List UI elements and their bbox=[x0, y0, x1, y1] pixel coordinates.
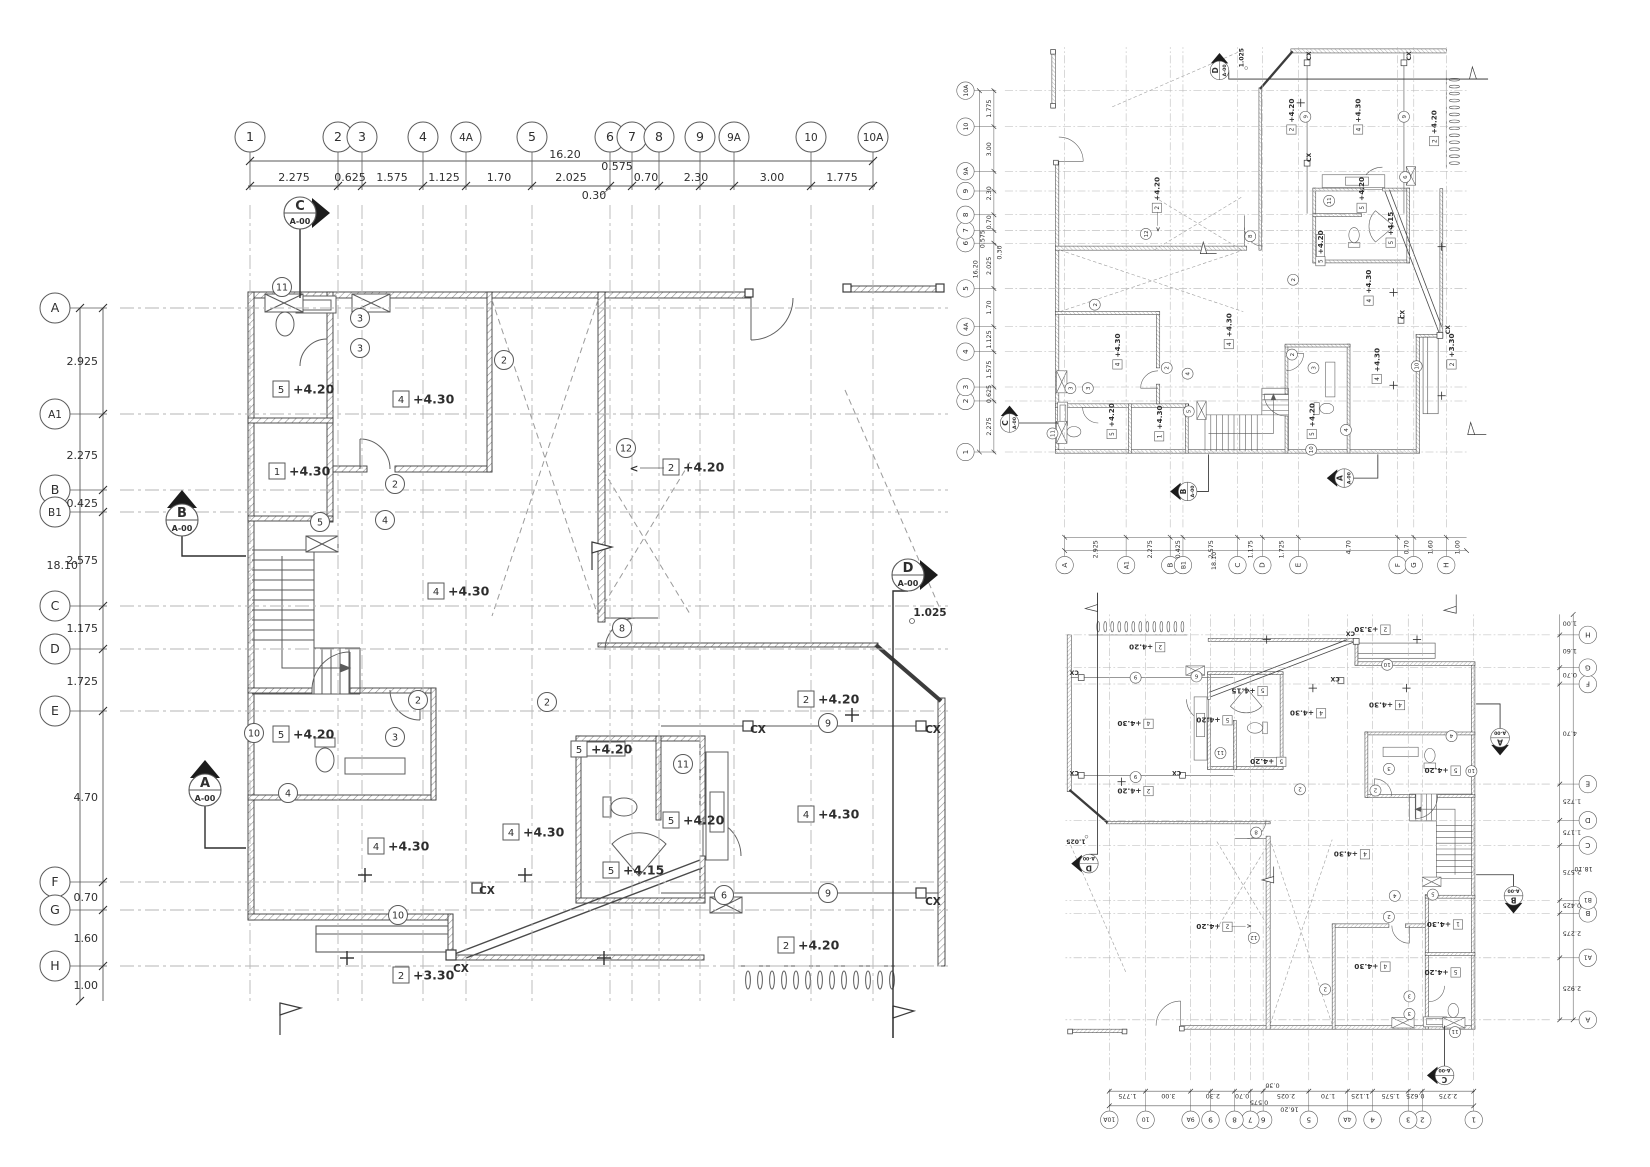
drawing-sheet: 12344A567899A1010AAA1BB1CDEFGH2.2750.625… bbox=[0, 0, 1650, 1167]
plan-view-main bbox=[40, 122, 948, 1038]
plan-view-rotated-90 bbox=[957, 47, 1488, 574]
floor-plan-drawing: 12344A567899A1010AAA1BB1CDEFGH2.2750.625… bbox=[0, 0, 1650, 1167]
plan-view-rotated-180 bbox=[1065, 593, 1596, 1129]
